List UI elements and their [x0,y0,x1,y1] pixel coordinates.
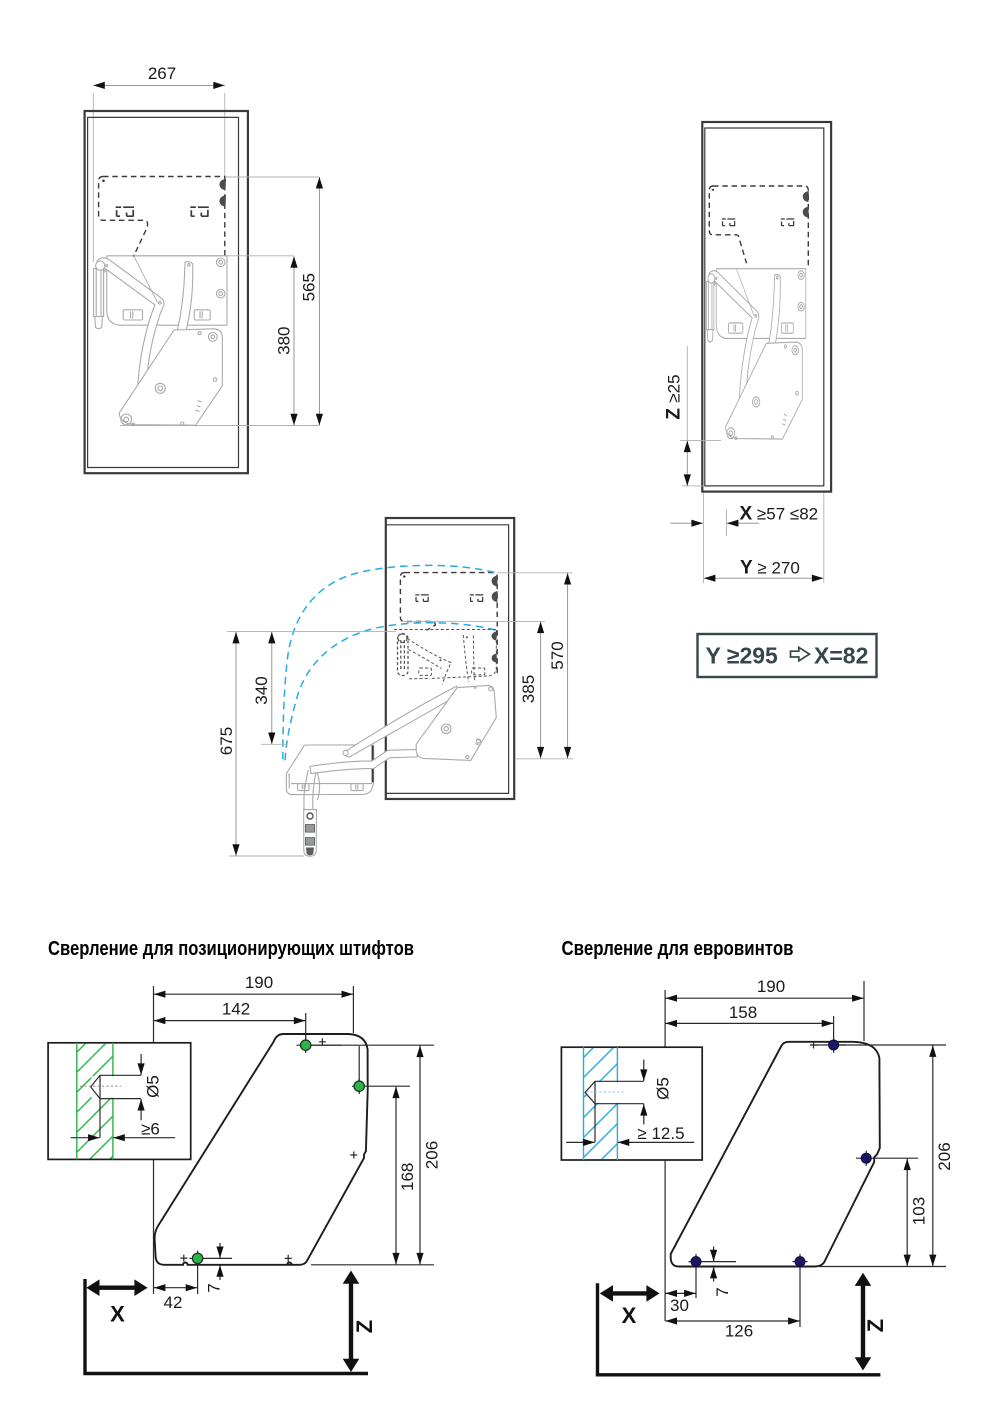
svg-text:X=82: X=82 [814,643,868,669]
svg-text:126: 126 [725,1322,753,1341]
svg-text:570: 570 [548,641,567,669]
svg-text:≥ 12.5: ≥ 12.5 [637,1124,684,1143]
svg-text:Сверление для евровинтов: Сверление для евровинтов [562,938,794,960]
svg-text:30: 30 [670,1296,689,1315]
svg-text:158: 158 [729,1003,757,1022]
svg-text:Ø5: Ø5 [653,1077,672,1100]
svg-text:340: 340 [252,676,271,704]
svg-text:Z ≥25: Z ≥25 [664,374,685,419]
svg-text:565: 565 [299,273,318,301]
svg-text:103: 103 [909,1197,928,1225]
svg-text:Y ≥ 270: Y ≥ 270 [740,558,800,579]
svg-text:X ≥57 ≤82: X ≥57 ≤82 [740,504,819,525]
svg-text:380: 380 [275,327,294,355]
svg-text:Y ≥295: Y ≥295 [706,643,779,669]
svg-text:X: X [110,1302,125,1327]
svg-text:Z: Z [863,1319,888,1332]
svg-text:Z: Z [352,1320,377,1333]
svg-text:267: 267 [148,64,176,83]
svg-text:168: 168 [398,1163,417,1191]
svg-text:42: 42 [164,1293,183,1312]
svg-text:X: X [622,1303,637,1328]
svg-text:675: 675 [217,727,236,755]
svg-text:7: 7 [713,1287,732,1296]
svg-text:385: 385 [519,675,538,703]
svg-text:190: 190 [757,977,785,996]
svg-text:Сверление для позиционирующих: Сверление для позиционирующих штифтов [48,938,414,960]
svg-text:≥6: ≥6 [141,1120,160,1139]
svg-text:206: 206 [935,1142,954,1170]
svg-text:190: 190 [245,973,273,992]
svg-text:142: 142 [222,1000,250,1019]
svg-text:Ø5: Ø5 [143,1075,162,1098]
svg-text:7: 7 [204,1283,223,1292]
svg-text:206: 206 [423,1141,442,1169]
